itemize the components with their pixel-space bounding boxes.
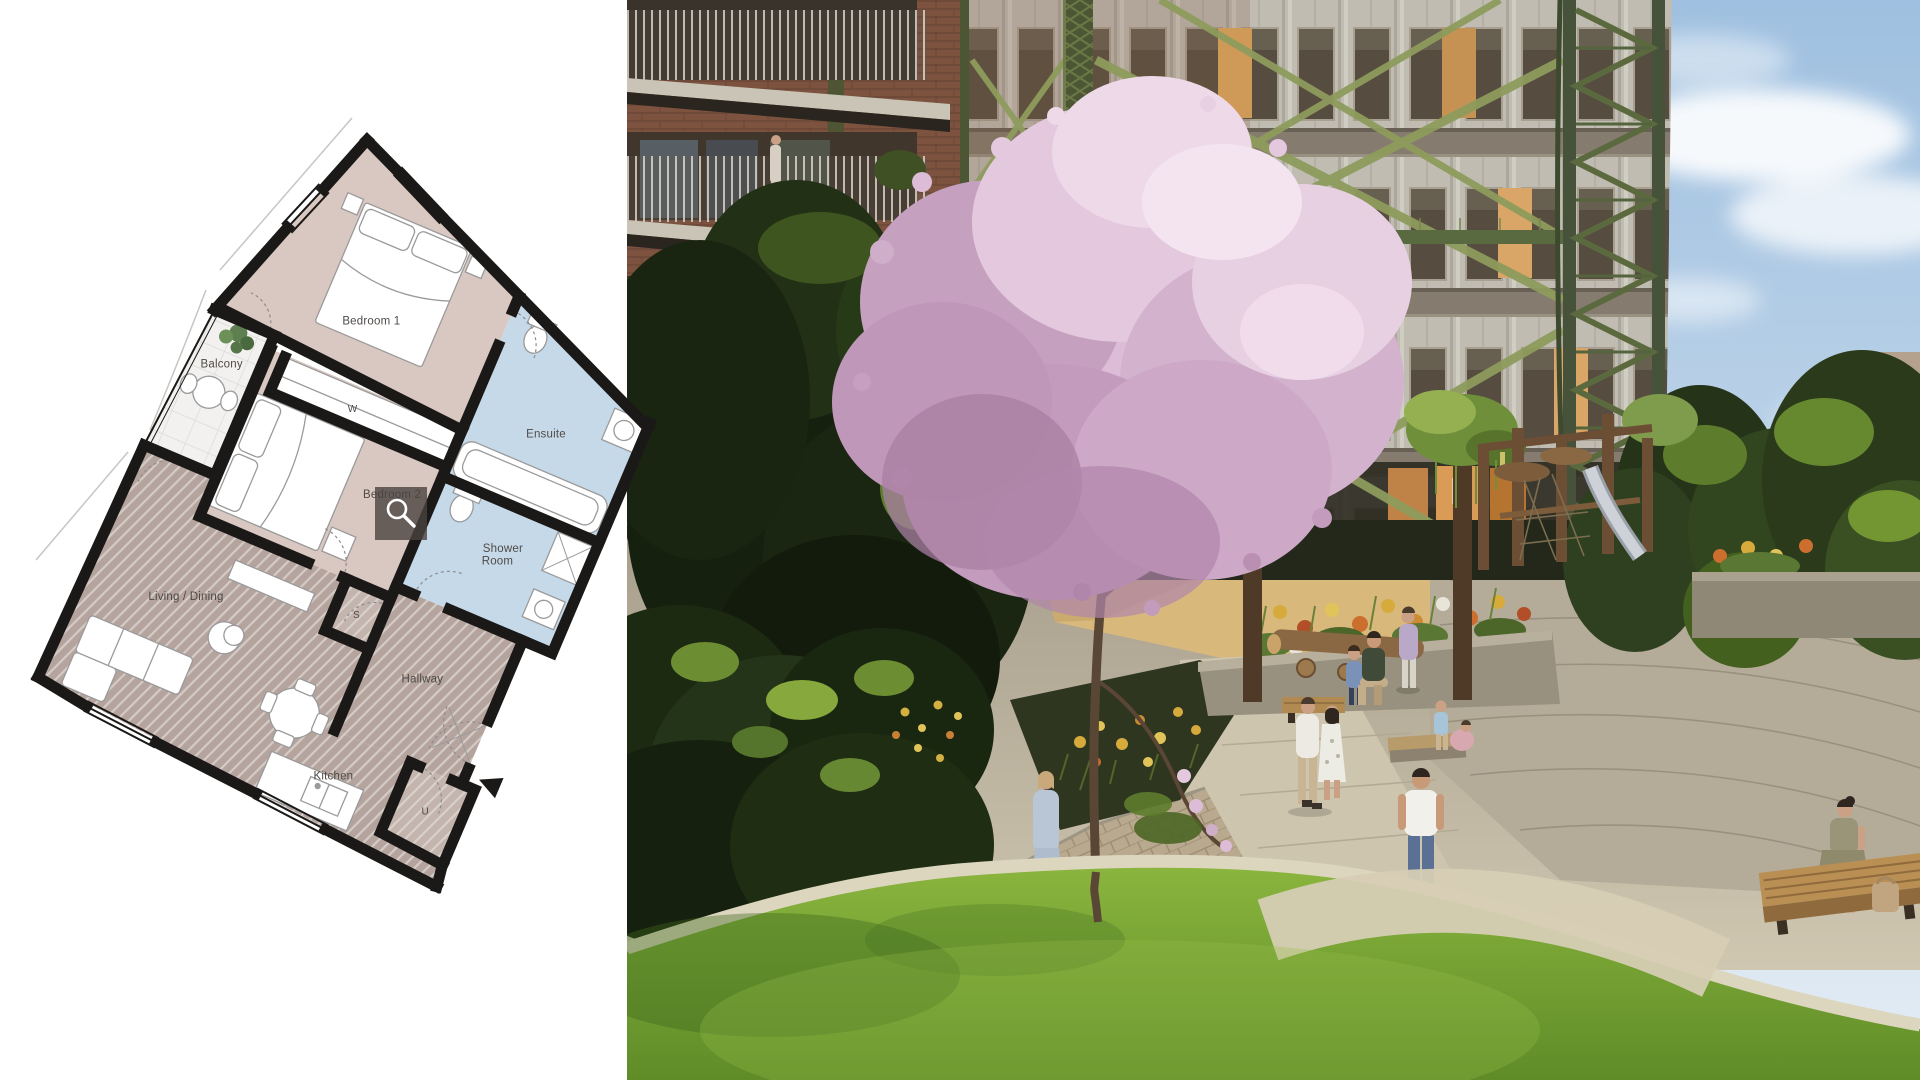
label-kitchen: Kitchen [314, 771, 354, 783]
scene: Bedroom 1 Ensuite Balcony W Bedroom 2 Sh… [0, 0, 1920, 1080]
label-wardrobe: W [348, 404, 358, 415]
label-living-dining: Living / Dining [148, 591, 223, 603]
label-shower-2: Room [482, 556, 513, 568]
photo-render [555, 0, 1920, 1080]
zoom-overlay[interactable] [375, 487, 427, 540]
handbag [1872, 878, 1899, 912]
label-utility: U [421, 806, 428, 817]
label-bedroom-1: Bedroom 1 [342, 315, 400, 327]
label-shower-1: Shower [483, 543, 523, 555]
screenshot-stage: Bedroom 1 Ensuite Balcony W Bedroom 2 Sh… [0, 0, 1920, 1080]
entrance-arrow [475, 769, 504, 798]
balcony-person [770, 135, 781, 183]
label-ensuite: Ensuite [526, 429, 566, 441]
label-store: S [353, 610, 360, 621]
floor-plan: Bedroom 1 Ensuite Balcony W Bedroom 2 Sh… [24, 104, 713, 894]
label-balcony: Balcony [201, 358, 243, 370]
label-hallway: Hallway [402, 674, 444, 686]
